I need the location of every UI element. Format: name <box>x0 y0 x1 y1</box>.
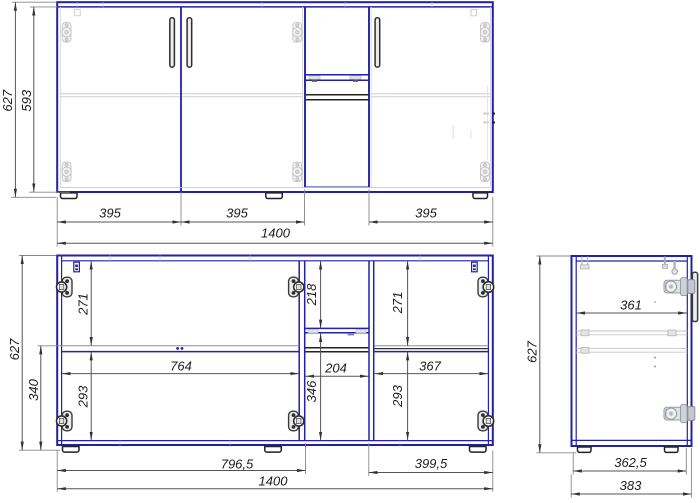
svg-text:367: 367 <box>419 358 441 373</box>
svg-text:293: 293 <box>76 385 91 408</box>
svg-text:383: 383 <box>620 478 642 493</box>
svg-text:395: 395 <box>99 205 121 220</box>
svg-text:271: 271 <box>390 292 405 315</box>
svg-text:271: 271 <box>76 293 91 316</box>
svg-text:362,5: 362,5 <box>614 455 647 470</box>
svg-text:204: 204 <box>324 361 347 376</box>
svg-text:796,5: 796,5 <box>221 457 254 472</box>
svg-text:218: 218 <box>304 283 319 306</box>
svg-text:764: 764 <box>170 358 192 373</box>
svg-text:395: 395 <box>415 205 437 220</box>
svg-text:361: 361 <box>620 298 642 313</box>
svg-text:293: 293 <box>390 384 405 407</box>
svg-text:395: 395 <box>226 205 248 220</box>
svg-text:627: 627 <box>7 338 22 360</box>
svg-text:627: 627 <box>525 340 540 362</box>
svg-text:346: 346 <box>304 380 319 402</box>
svg-text:1400: 1400 <box>261 226 291 241</box>
svg-text:627: 627 <box>0 89 15 111</box>
svg-text:399,5: 399,5 <box>415 456 448 471</box>
svg-text:340: 340 <box>26 378 41 400</box>
svg-text:1400: 1400 <box>259 473 289 488</box>
svg-text:593: 593 <box>19 89 34 111</box>
